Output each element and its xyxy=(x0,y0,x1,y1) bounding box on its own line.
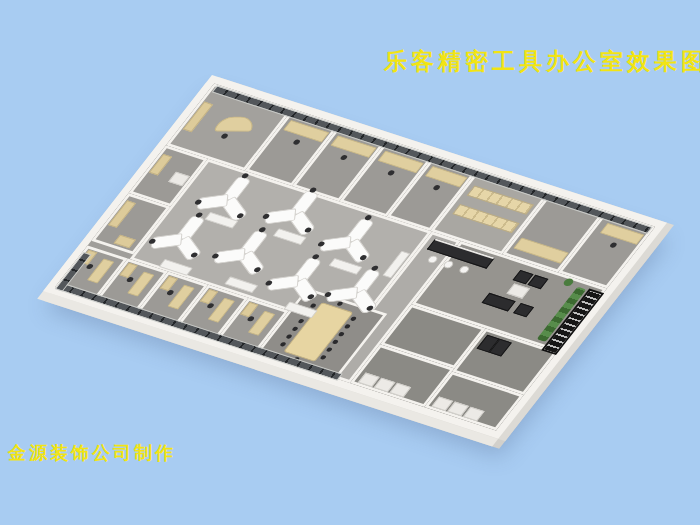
building-floorplan xyxy=(43,75,667,439)
credit-text: 金源装饰公司制作 xyxy=(8,441,176,465)
render-page: { "title": { "text": "乐客精密工具办公室效果图", "co… xyxy=(0,0,700,525)
page-title: 乐客精密工具办公室效果图 xyxy=(384,46,700,77)
